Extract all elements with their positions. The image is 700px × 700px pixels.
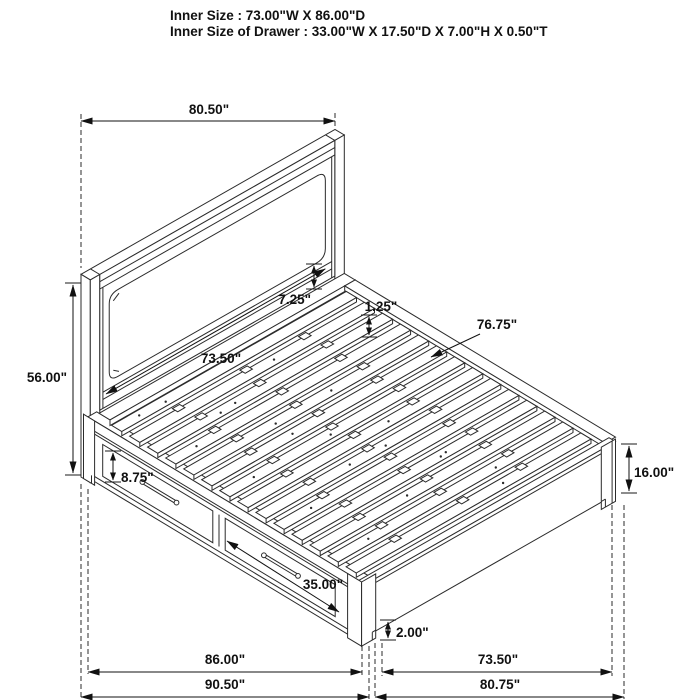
dim-side-rail-length: 86.00" <box>205 652 245 667</box>
dim-foot-clearance: 2.00" <box>396 625 429 640</box>
screw-dot <box>445 451 447 453</box>
right-post-front-face <box>335 135 345 292</box>
screw-dot <box>291 433 293 435</box>
dim-slat-length: 76.75" <box>477 317 517 332</box>
screw-dot <box>220 412 222 414</box>
dim-headboard-height: 56.00" <box>27 370 67 385</box>
dim-overall-depth: 90.50" <box>205 677 245 692</box>
bed-dimension-diagram: Inner Size : 73.00"W X 86.00"D Inner Siz… <box>0 0 700 700</box>
dim-panel-width: 73.50" <box>201 351 241 366</box>
handle-cap <box>262 553 267 558</box>
screw-dot <box>138 414 140 416</box>
screw-dot <box>367 538 369 540</box>
screw-dot <box>195 445 197 447</box>
screw-dot <box>387 420 389 422</box>
screw-dot <box>330 433 332 435</box>
handle-cap <box>174 500 179 505</box>
right-leg <box>601 439 615 509</box>
screw-dot <box>330 389 332 391</box>
head-side-leg <box>84 414 95 485</box>
bed-isometric-drawing: 80.50"56.00"73.50"7.25"1.25"76.75"8.75"1… <box>0 0 700 700</box>
dim-rail-height: 7.25" <box>278 292 311 307</box>
foot-post-side-face <box>348 574 362 647</box>
dim-drawer-height: 8.75" <box>121 470 154 485</box>
screw-dot <box>495 466 497 468</box>
dim-slat-thickness: 1.25" <box>365 299 398 314</box>
screw-dot <box>165 401 167 403</box>
screw-dot <box>275 422 277 424</box>
screw-dot <box>502 482 504 484</box>
screw-dot <box>406 494 408 496</box>
foot-post <box>348 574 376 647</box>
screw-dot <box>310 507 312 509</box>
dim-foot-inner-width: 73.50" <box>478 652 518 667</box>
screw-dot <box>385 444 387 446</box>
handle-cap <box>296 574 301 579</box>
screw-dot <box>253 476 255 478</box>
screw-dot <box>440 455 442 457</box>
screw-dot <box>273 358 275 360</box>
dim-headboard-width: 80.50" <box>189 102 229 117</box>
dim-leg-height: 16.00" <box>634 465 674 480</box>
dim-overall-width: 80.75" <box>480 677 520 692</box>
screw-dot <box>234 402 236 404</box>
screw-dot <box>349 463 351 465</box>
foot-post-front-face <box>362 574 376 646</box>
dim-drawer-width: 35.00" <box>303 577 343 592</box>
